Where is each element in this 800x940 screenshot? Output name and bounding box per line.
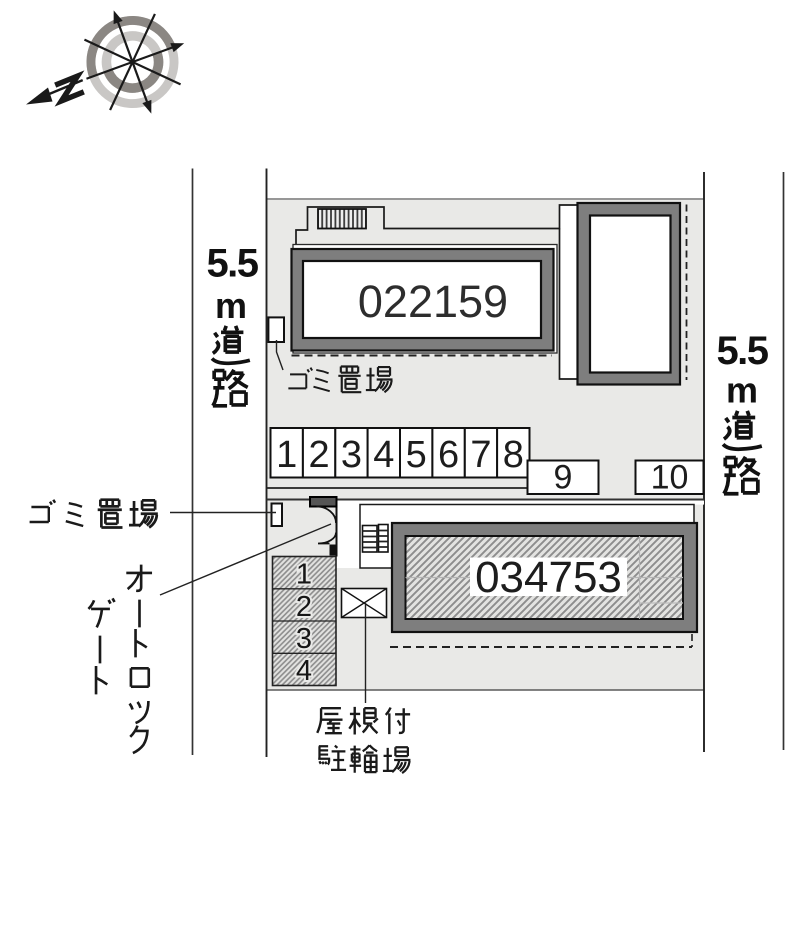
svg-text:2: 2: [309, 434, 330, 476]
svg-text:3: 3: [296, 623, 312, 655]
svg-text:4: 4: [373, 434, 394, 476]
svg-text:3: 3: [341, 434, 362, 476]
svg-text:m: m: [726, 370, 758, 411]
svg-text:1: 1: [296, 559, 312, 591]
svg-text:8: 8: [503, 434, 524, 476]
svg-text:7: 7: [470, 434, 491, 476]
svg-text:022159: 022159: [358, 276, 508, 327]
svg-text:m: m: [215, 285, 247, 326]
svg-text:1: 1: [276, 434, 297, 476]
svg-text:9: 9: [554, 459, 573, 497]
svg-text:034753: 034753: [475, 553, 622, 602]
svg-text:5.5: 5.5: [716, 329, 768, 373]
svg-text:5.5: 5.5: [206, 242, 258, 286]
svg-text:4: 4: [296, 655, 312, 687]
svg-text:10: 10: [651, 459, 689, 497]
svg-text:2: 2: [296, 591, 312, 623]
svg-text:6: 6: [438, 434, 459, 476]
svg-text:5: 5: [406, 434, 427, 476]
